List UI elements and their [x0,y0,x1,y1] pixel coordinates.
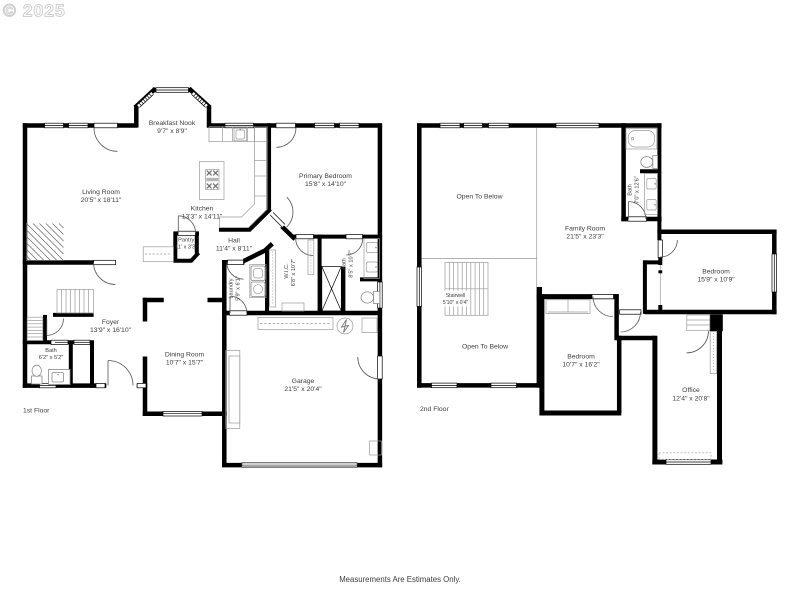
svg-text:Kitchen: Kitchen [191,206,214,213]
svg-text:5'9" x 6'1": 5'9" x 6'1" [236,276,242,300]
svg-text:11' x 3'3": 11' x 3'3" [175,245,197,251]
svg-text:15'9" x 10'9": 15'9" x 10'9" [697,277,735,284]
svg-text:Dining Room: Dining Room [165,352,205,359]
svg-text:12'4" x 20'8": 12'4" x 20'8" [672,396,710,403]
svg-text:© 2025: © 2025 [3,1,66,21]
svg-text:Stairwell: Stairwell [446,293,466,299]
svg-text:Measurements Are Estimates Onl: Measurements Are Estimates Only. [339,575,461,584]
svg-text:9'7" x 8'9": 9'7" x 8'9" [157,128,187,135]
svg-text:Pantry: Pantry [178,238,194,244]
svg-text:15'8" x 14'10": 15'8" x 14'10" [305,181,347,188]
svg-text:Bath: Bath [628,184,634,196]
svg-text:Bedroom: Bedroom [567,354,595,361]
svg-text:Open To Below: Open To Below [462,344,508,351]
svg-text:21'5" x 23'3": 21'5" x 23'3" [566,234,604,241]
svg-text:Breakfast Nook: Breakfast Nook [149,120,196,127]
svg-text:5'10" x 0'4": 5'10" x 0'4" [443,300,469,306]
svg-text:7'0" x 12'6": 7'0" x 12'6" [635,176,641,204]
svg-text:Hall: Hall [228,238,240,245]
svg-text:Bath: Bath [45,348,57,354]
svg-text:Primary Bedroom: Primary Bedroom [299,173,352,180]
svg-text:Garage: Garage [292,378,315,385]
svg-text:Office: Office [682,387,700,394]
svg-text:13'3" x 14'11": 13'3" x 14'11" [182,214,223,221]
svg-text:6'2" x 5'2": 6'2" x 5'2" [39,355,63,361]
svg-text:6'8" x 10'7": 6'8" x 10'7" [291,259,297,287]
svg-text:10'7" x 15'7": 10'7" x 15'7" [166,360,204,367]
svg-text:13'9" x 16'10": 13'9" x 16'10" [90,327,132,334]
svg-text:Living Room: Living Room [82,189,120,196]
svg-text:Bedroom: Bedroom [702,269,730,276]
svg-text:Family Room: Family Room [565,226,605,233]
svg-text:11'4" x 8'11": 11'4" x 8'11" [216,246,253,253]
svg-text:1st Floor: 1st Floor [23,408,50,415]
svg-text:Foyer: Foyer [102,319,120,326]
svg-text:Laundry: Laundry [229,278,235,298]
svg-text:20'5" x 18'11": 20'5" x 18'11" [81,197,122,204]
svg-text:21'5" x 20'4": 21'5" x 20'4" [284,386,322,393]
svg-text:8'5" x 10'7": 8'5" x 10'7" [349,250,355,278]
svg-text:Open To Below: Open To Below [457,194,503,201]
svg-text:W.I.C.: W.I.C. [284,263,290,279]
svg-text:2nd Floor: 2nd Floor [420,406,449,413]
svg-text:Bath: Bath [342,258,348,270]
svg-text:10'7" x 16'2": 10'7" x 16'2" [562,362,600,369]
